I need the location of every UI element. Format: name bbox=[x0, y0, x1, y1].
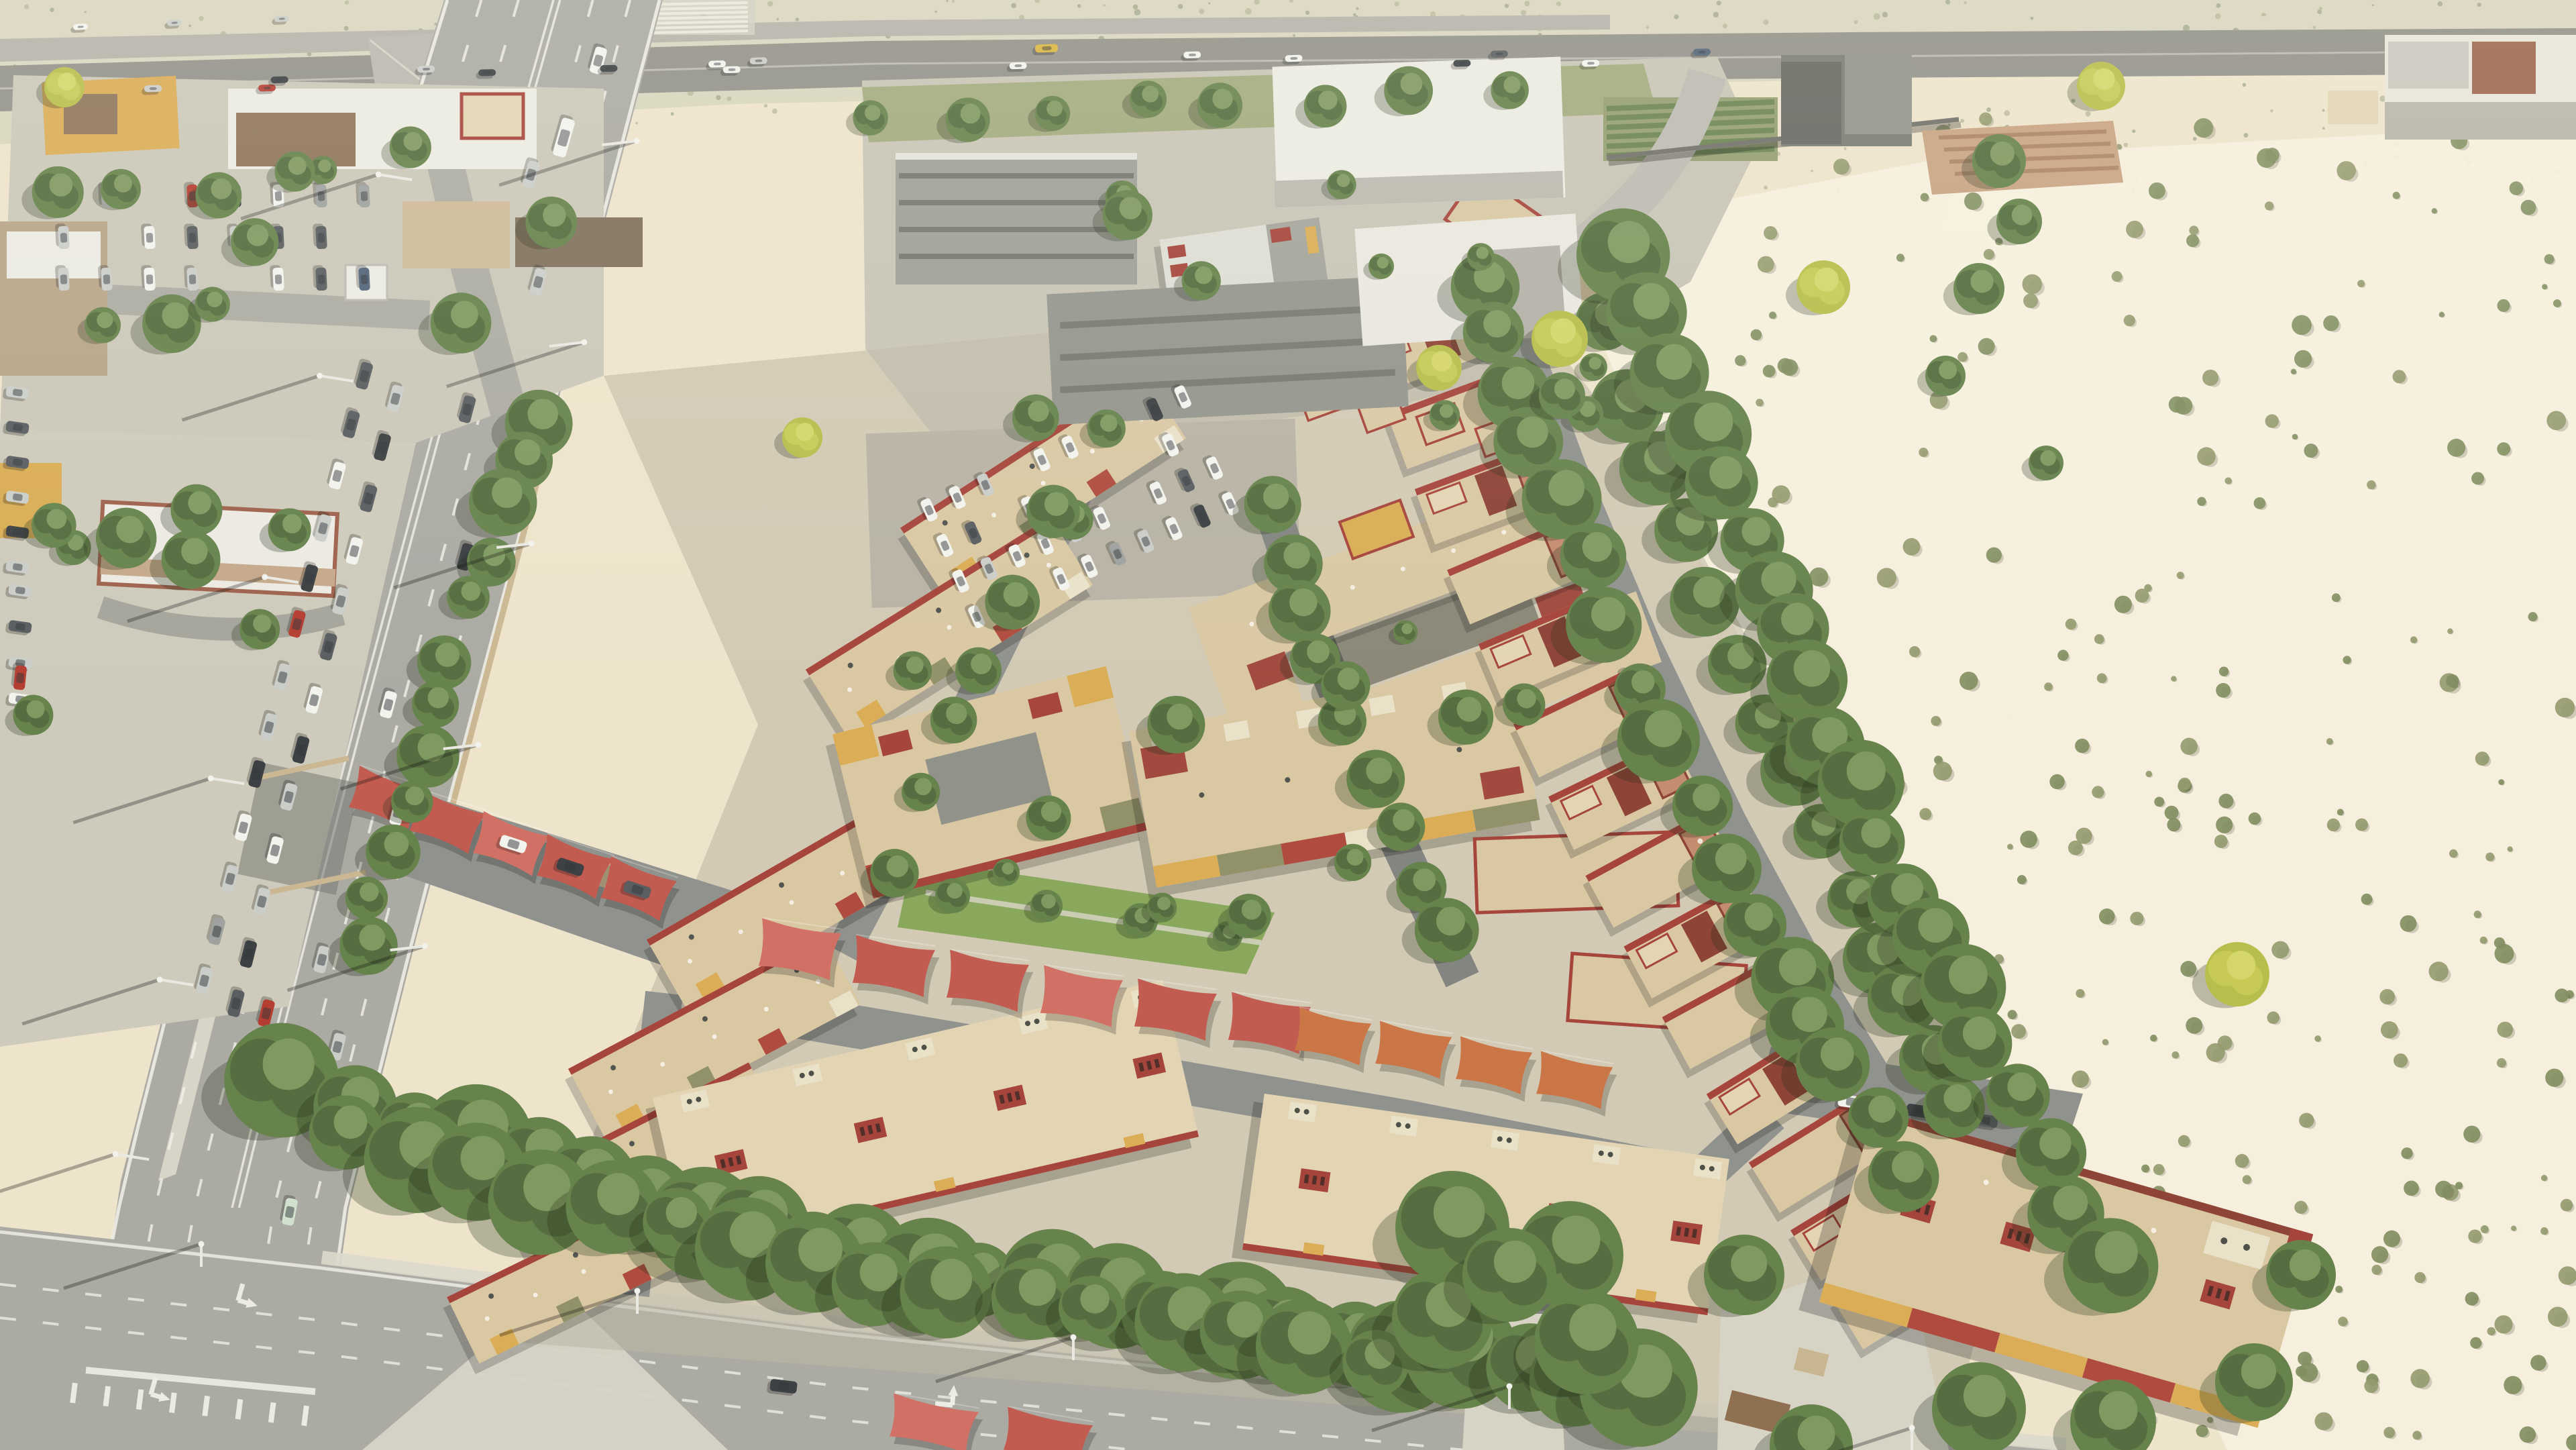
aerial-photo-stage bbox=[0, 0, 2576, 1450]
atmosphere-layer bbox=[0, 0, 2576, 1450]
warm-tint bbox=[0, 0, 2576, 1450]
aerial-photo bbox=[0, 0, 2576, 1450]
